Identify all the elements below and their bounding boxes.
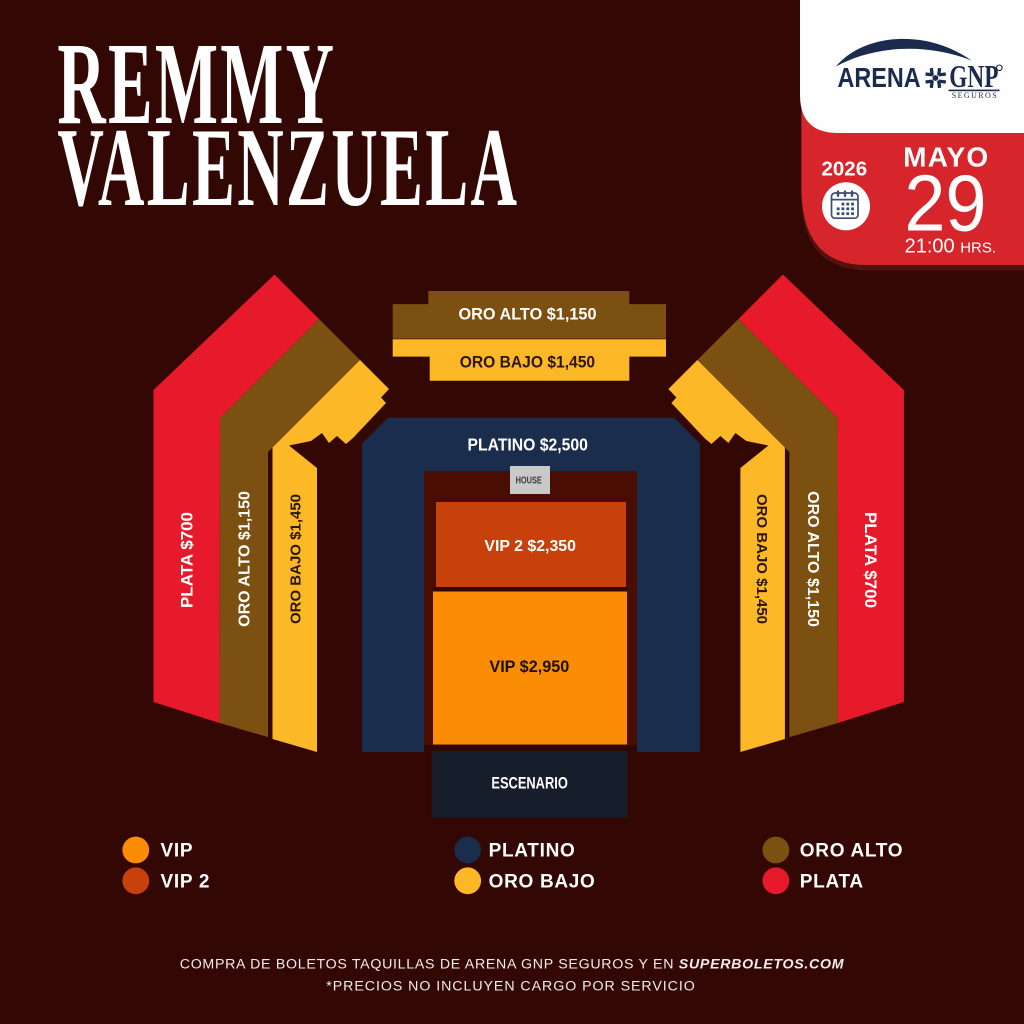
svg-text:VIP 2: VIP 2 xyxy=(161,871,211,892)
svg-text:ORO ALTO $1,150: ORO ALTO $1,150 xyxy=(804,491,821,627)
svg-text:COMPRA DE BOLETOS TAQUILLAS DE: COMPRA DE BOLETOS TAQUILLAS DE ARENA GNP… xyxy=(180,956,845,972)
svg-text:HOUSE: HOUSE xyxy=(516,475,542,486)
svg-text:VALENZUELA: VALENZUELA xyxy=(57,106,519,230)
svg-text:ORO ALTO $1,150: ORO ALTO $1,150 xyxy=(458,304,596,323)
svg-text:2026: 2026 xyxy=(821,157,867,180)
svg-text:ESCENARIO: ESCENARIO xyxy=(491,775,567,793)
svg-text:ORO BAJO $1,450: ORO BAJO $1,450 xyxy=(753,494,770,624)
svg-text:VIP $2,950: VIP $2,950 xyxy=(489,658,569,676)
svg-text:ORO ALTO $1,150: ORO ALTO $1,150 xyxy=(237,491,254,627)
svg-text:ORO ALTO: ORO ALTO xyxy=(800,841,903,862)
svg-text:*PRECIOS NO INCLUYEN CARGO POR: *PRECIOS NO INCLUYEN CARGO POR SERVICIO xyxy=(326,979,695,995)
svg-text:PLATA $700: PLATA $700 xyxy=(178,512,197,608)
svg-text:ORO BAJO $1,450: ORO BAJO $1,450 xyxy=(287,494,304,624)
svg-text:21:00 HRS.: 21:00 HRS. xyxy=(905,235,996,257)
svg-text:PLATINO $2,500: PLATINO $2,500 xyxy=(468,435,588,455)
svg-text:PLATINO: PLATINO xyxy=(489,841,576,862)
svg-text:ARENA: ARENA xyxy=(838,63,921,93)
svg-text:VIP 2 $2,350: VIP 2 $2,350 xyxy=(484,538,576,555)
svg-text:ORO BAJO $1,450: ORO BAJO $1,450 xyxy=(460,353,595,372)
svg-text:SEGUROS: SEGUROS xyxy=(952,91,998,100)
svg-text:VIP: VIP xyxy=(161,841,194,862)
svg-text:PLATA: PLATA xyxy=(800,871,864,892)
svg-text:PLATA $700: PLATA $700 xyxy=(861,512,880,608)
svg-text:ORO BAJO: ORO BAJO xyxy=(489,871,596,892)
